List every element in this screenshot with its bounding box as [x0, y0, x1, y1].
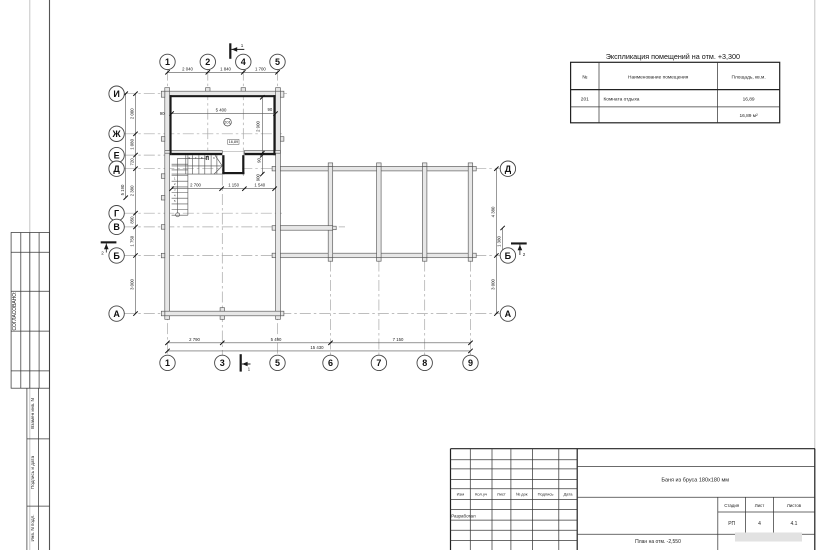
svg-text:2 380: 2 380 — [130, 185, 135, 196]
svg-text:5 400: 5 400 — [216, 108, 227, 113]
svg-text:900: 900 — [256, 174, 261, 182]
svg-text:201: 201 — [224, 120, 231, 125]
svg-text:Стадия: Стадия — [724, 503, 740, 508]
svg-text:Взамен инв. N: Взамен инв. N — [30, 398, 35, 429]
svg-text:7: 7 — [376, 358, 381, 368]
svg-text:2 900: 2 900 — [256, 121, 261, 132]
svg-text:Б: Б — [505, 251, 512, 261]
svg-text:90: 90 — [160, 111, 165, 116]
svg-text:1 540: 1 540 — [254, 183, 265, 188]
svg-text:СОГЛАСОВАНО:: СОГЛАСОВАНО: — [12, 291, 18, 330]
svg-text:Д: Д — [505, 164, 512, 174]
svg-text:90: 90 — [256, 158, 261, 163]
svg-text:Кол.уч: Кол.уч — [475, 492, 487, 497]
svg-text:Е: Е — [114, 150, 120, 160]
svg-text:Ж: Ж — [112, 129, 122, 139]
svg-text:16,89: 16,89 — [229, 140, 239, 144]
svg-text:РП: РП — [728, 521, 735, 527]
svg-text:2 700: 2 700 — [190, 183, 201, 188]
svg-text:4.1: 4.1 — [791, 521, 798, 527]
svg-text:1: 1 — [248, 366, 251, 371]
svg-text:Листов: Листов — [787, 503, 802, 508]
svg-text:90: 90 — [268, 107, 273, 112]
svg-text:№ док: № док — [516, 492, 528, 497]
svg-text:15 430: 15 430 — [310, 345, 324, 350]
svg-text:5: 5 — [275, 57, 280, 67]
svg-text:А: А — [113, 309, 120, 319]
svg-text:850: 850 — [130, 216, 135, 224]
svg-text:Б: Б — [113, 251, 120, 261]
svg-text:2: 2 — [101, 250, 104, 255]
svg-text:5: 5 — [275, 358, 280, 368]
svg-text:2: 2 — [523, 252, 526, 257]
svg-text:Лист: Лист — [497, 492, 506, 497]
svg-text:4: 4 — [241, 57, 246, 67]
svg-text:Г: Г — [114, 209, 119, 219]
svg-text:1 150: 1 150 — [228, 183, 239, 188]
svg-text:5 490: 5 490 — [271, 337, 282, 342]
svg-text:Экспликация помещений на отм.: Экспликация помещений на отм. +3,300 — [606, 52, 740, 61]
svg-text:2: 2 — [205, 57, 210, 67]
svg-text:1: 1 — [241, 43, 244, 48]
svg-text:5 190: 5 190 — [120, 184, 125, 195]
svg-text:№: № — [582, 75, 587, 81]
svg-text:Подпись: Подпись — [538, 492, 554, 497]
svg-text:Дата: Дата — [564, 492, 574, 497]
svg-text:Наименование помещения: Наименование помещения — [628, 75, 689, 81]
svg-text:3 000: 3 000 — [490, 279, 495, 290]
svg-text:9: 9 — [468, 358, 473, 368]
svg-text:2 040: 2 040 — [182, 67, 193, 72]
svg-text:1 080: 1 080 — [130, 138, 135, 149]
svg-text:Изм: Изм — [457, 492, 465, 497]
svg-text:Комната отдыха: Комната отдыха — [604, 96, 640, 102]
svg-text:1 380: 1 380 — [497, 236, 502, 247]
svg-text:Д: Д — [113, 164, 120, 174]
svg-text:1: 1 — [165, 358, 170, 368]
svg-text:Лист: Лист — [755, 503, 765, 508]
svg-text:И: И — [113, 89, 119, 99]
svg-text:1 700: 1 700 — [255, 67, 266, 72]
svg-text:1: 1 — [165, 57, 170, 67]
svg-text:3: 3 — [220, 358, 225, 368]
svg-text:А: А — [505, 309, 512, 319]
svg-text:2 000: 2 000 — [130, 108, 135, 119]
svg-text:4: 4 — [758, 521, 761, 527]
svg-text:Инв. N подл.: Инв. N подл. — [30, 514, 35, 541]
svg-text:7 150: 7 150 — [393, 337, 404, 342]
svg-text:8: 8 — [422, 358, 427, 368]
svg-text:16,89: 16,89 — [743, 96, 755, 102]
svg-text:Подпись и дата: Подпись и дата — [30, 456, 35, 489]
svg-text:Площадь, кв.м.: Площадь, кв.м. — [732, 75, 766, 81]
svg-text:4 380: 4 380 — [490, 206, 495, 217]
svg-text:201: 201 — [581, 96, 589, 102]
svg-text:16,89 м²: 16,89 м² — [739, 113, 758, 119]
svg-text:В: В — [113, 222, 120, 232]
svg-text:Разработал: Разработал — [451, 514, 476, 519]
svg-text:1 840: 1 840 — [220, 67, 231, 72]
svg-text:Баня из бруса 180х180 мм: Баня из бруса 180х180 мм — [661, 477, 729, 483]
svg-text:2 790: 2 790 — [189, 337, 200, 342]
svg-text:720: 720 — [130, 158, 135, 166]
svg-text:1 750: 1 750 — [130, 235, 135, 246]
svg-text:6: 6 — [328, 358, 333, 368]
svg-text:3 000: 3 000 — [130, 279, 135, 290]
svg-text:План на отм. -2,550: План на отм. -2,550 — [635, 539, 681, 545]
